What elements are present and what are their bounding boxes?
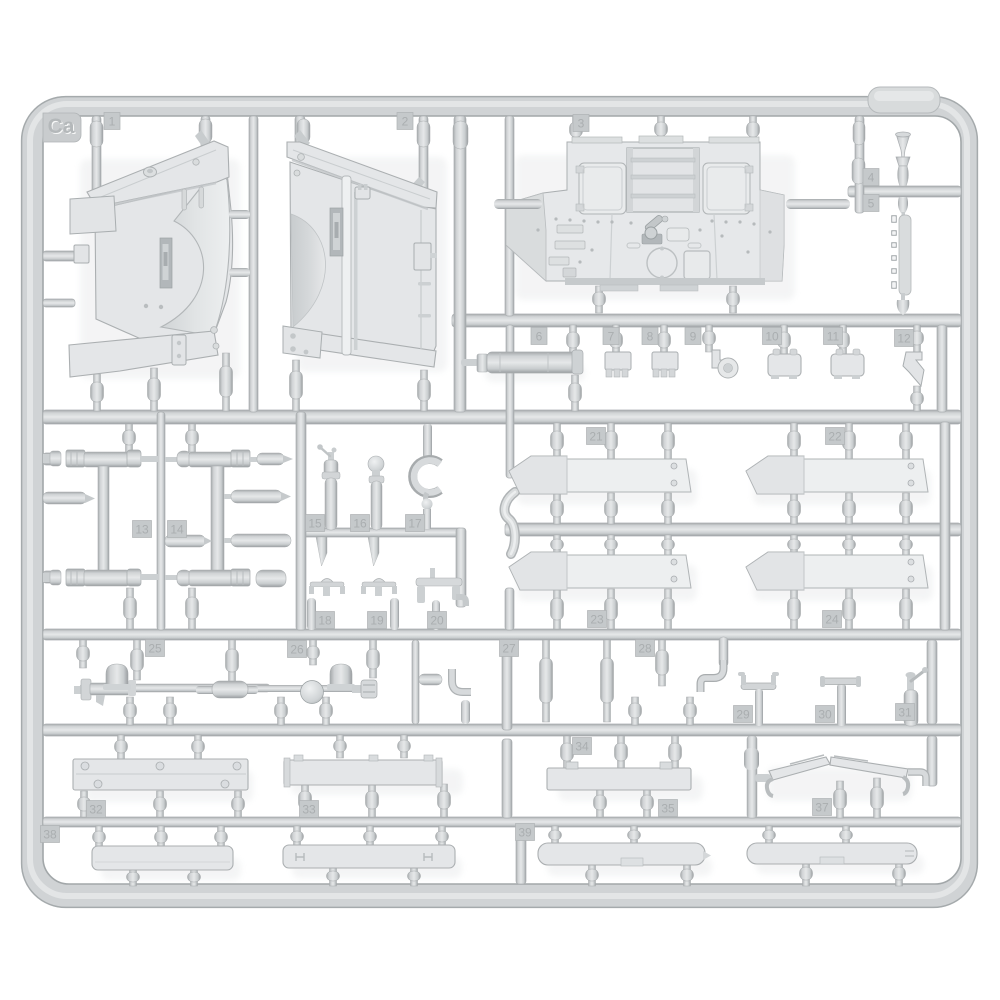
- svg-text:11: 11: [827, 330, 840, 344]
- svg-text:20: 20: [430, 614, 444, 628]
- svg-text:16: 16: [353, 517, 367, 531]
- svg-text:29: 29: [736, 708, 750, 722]
- svg-text:32: 32: [89, 803, 103, 817]
- svg-text:Ca: Ca: [48, 115, 75, 138]
- svg-text:39: 39: [518, 826, 532, 840]
- svg-text:19: 19: [370, 614, 384, 628]
- svg-text:30: 30: [818, 708, 832, 722]
- svg-text:13: 13: [135, 523, 149, 537]
- svg-text:22: 22: [828, 430, 842, 444]
- svg-text:15: 15: [308, 517, 322, 531]
- svg-text:18: 18: [318, 614, 332, 628]
- svg-text:1: 1: [109, 115, 116, 129]
- svg-text:9: 9: [690, 330, 697, 344]
- svg-text:24: 24: [825, 613, 839, 627]
- svg-text:28: 28: [638, 642, 652, 656]
- svg-text:25: 25: [148, 642, 162, 656]
- svg-text:10: 10: [765, 330, 779, 344]
- svg-text:27: 27: [502, 642, 516, 656]
- svg-text:37: 37: [815, 801, 829, 815]
- svg-text:12: 12: [897, 332, 911, 346]
- svg-text:7: 7: [608, 330, 615, 344]
- svg-text:35: 35: [661, 802, 675, 816]
- svg-text:6: 6: [536, 330, 543, 344]
- svg-text:2: 2: [402, 115, 409, 129]
- svg-text:21: 21: [589, 430, 603, 444]
- svg-text:26: 26: [290, 643, 304, 657]
- svg-text:3: 3: [578, 117, 585, 131]
- svg-text:34: 34: [575, 740, 589, 754]
- svg-text:8: 8: [647, 330, 654, 344]
- svg-text:4: 4: [868, 171, 875, 185]
- svg-text:31: 31: [898, 706, 912, 720]
- svg-text:23: 23: [590, 613, 604, 627]
- svg-text:33: 33: [302, 803, 316, 817]
- svg-text:14: 14: [170, 523, 184, 537]
- svg-text:38: 38: [43, 828, 57, 842]
- svg-text:5: 5: [868, 197, 875, 211]
- svg-text:17: 17: [408, 517, 422, 531]
